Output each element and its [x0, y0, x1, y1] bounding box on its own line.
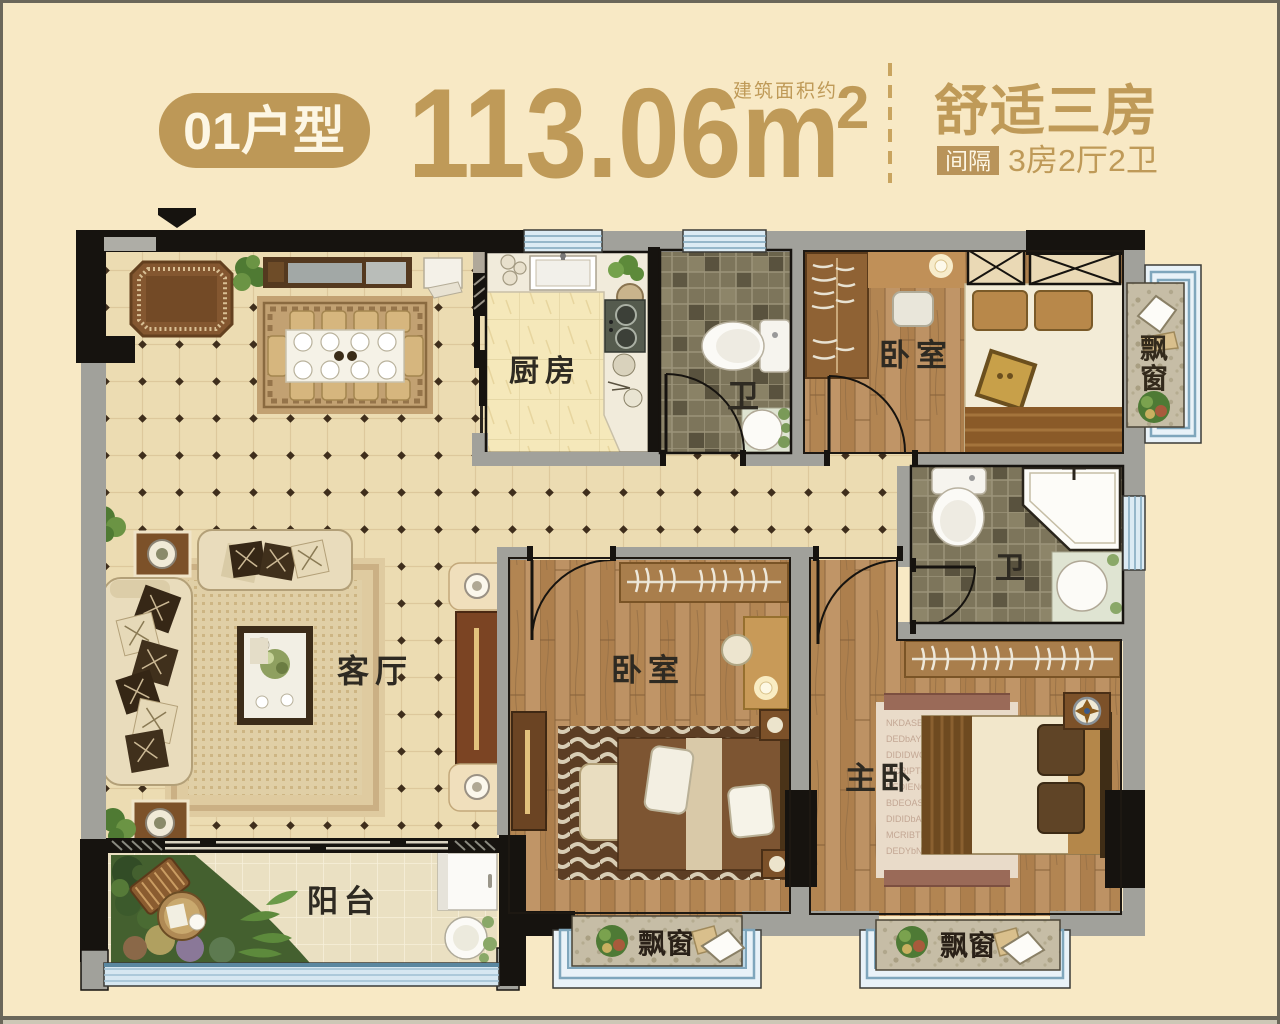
svg-text:卧室: 卧室 [611, 653, 685, 688]
svg-text:客厅: 客厅 [337, 653, 413, 689]
svg-text:DEDYbNI: DEDYbNI [886, 846, 925, 856]
svg-text:3房2厅2卫: 3房2厅2卫 [1008, 143, 1158, 178]
svg-text:飘窗: 飘窗 [940, 929, 996, 961]
svg-text:卫: 卫 [995, 552, 1025, 585]
svg-text:2: 2 [836, 74, 869, 141]
svg-text:卧室: 卧室 [879, 338, 953, 373]
svg-text:主卧: 主卧 [845, 761, 915, 796]
svg-text:建筑面积约: 建筑面积约 [733, 80, 838, 102]
svg-text:卫: 卫 [727, 378, 759, 414]
svg-text:舒适三房: 舒适三房 [934, 80, 1158, 142]
svg-text:飘: 飘 [1140, 333, 1168, 364]
svg-text:阳台: 阳台 [307, 884, 381, 919]
svg-text:01户型: 01户型 [183, 103, 345, 161]
svg-text:DIDIDbA: DIDIDbA [886, 814, 922, 824]
svg-text:飘窗: 飘窗 [638, 927, 694, 959]
svg-text:厨房: 厨房 [509, 355, 581, 388]
svg-text:窗: 窗 [1140, 362, 1168, 394]
svg-text:DIDIDWC: DIDIDWC [886, 750, 926, 760]
svg-text:间隔: 间隔 [945, 148, 991, 174]
